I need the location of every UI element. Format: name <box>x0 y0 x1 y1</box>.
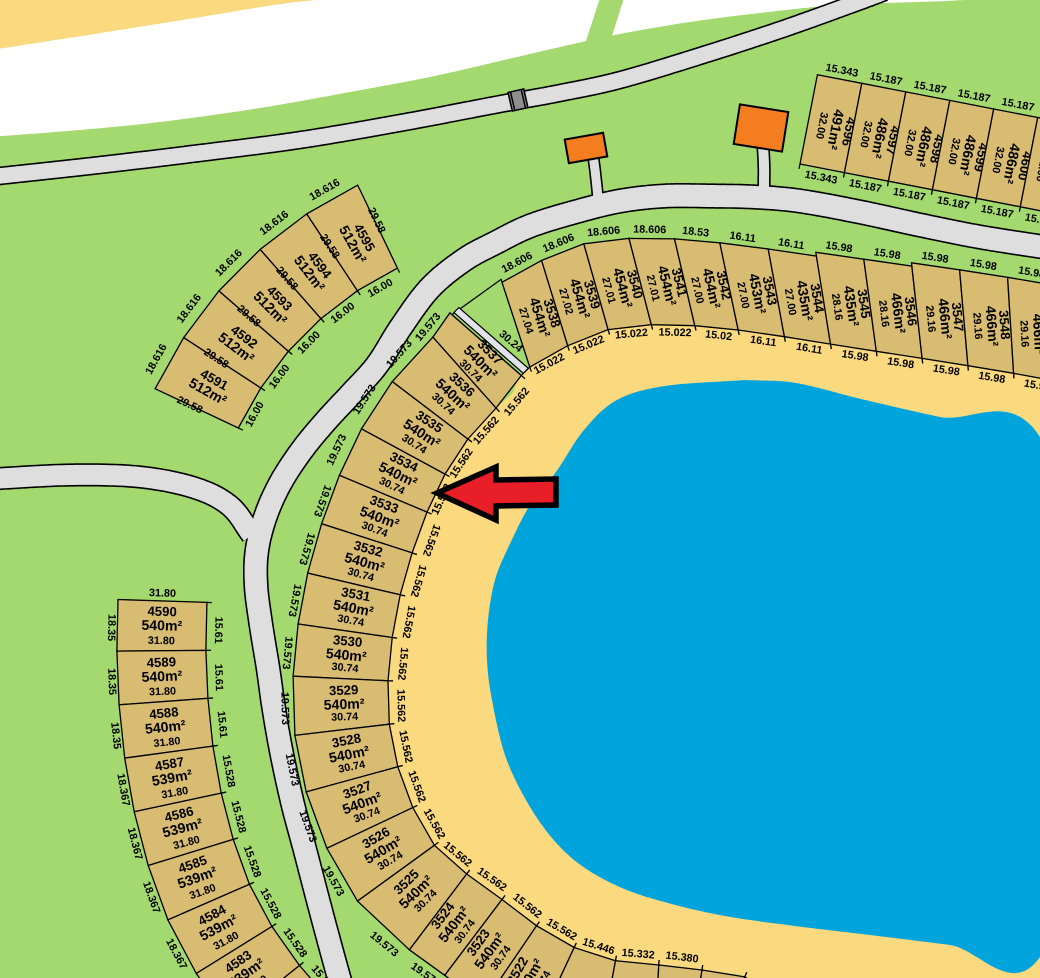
svg-text:15.022: 15.022 <box>658 326 691 339</box>
svg-text:18.35: 18.35 <box>105 668 118 695</box>
svg-text:30.74: 30.74 <box>331 661 359 676</box>
svg-text:30.74: 30.74 <box>331 711 358 724</box>
svg-text:31.80: 31.80 <box>148 635 175 648</box>
svg-text:31.80: 31.80 <box>149 685 176 698</box>
svg-text:18.35: 18.35 <box>105 614 118 641</box>
svg-text:15.61: 15.61 <box>212 664 225 691</box>
svg-text:31.80: 31.80 <box>149 587 176 600</box>
svg-text:540m²: 540m² <box>141 617 182 634</box>
svg-text:29.16: 29.16 <box>970 312 984 340</box>
svg-text:15.562: 15.562 <box>394 689 407 722</box>
svg-text:19.573: 19.573 <box>278 692 291 725</box>
svg-text:540m²: 540m² <box>323 695 365 712</box>
svg-text:18.606: 18.606 <box>633 223 666 236</box>
svg-text:15.61: 15.61 <box>212 617 225 644</box>
svg-text:29.16: 29.16 <box>1017 320 1030 348</box>
svg-text:466m²: 466m² <box>983 305 1002 347</box>
svg-text:540m²: 540m² <box>141 667 183 685</box>
